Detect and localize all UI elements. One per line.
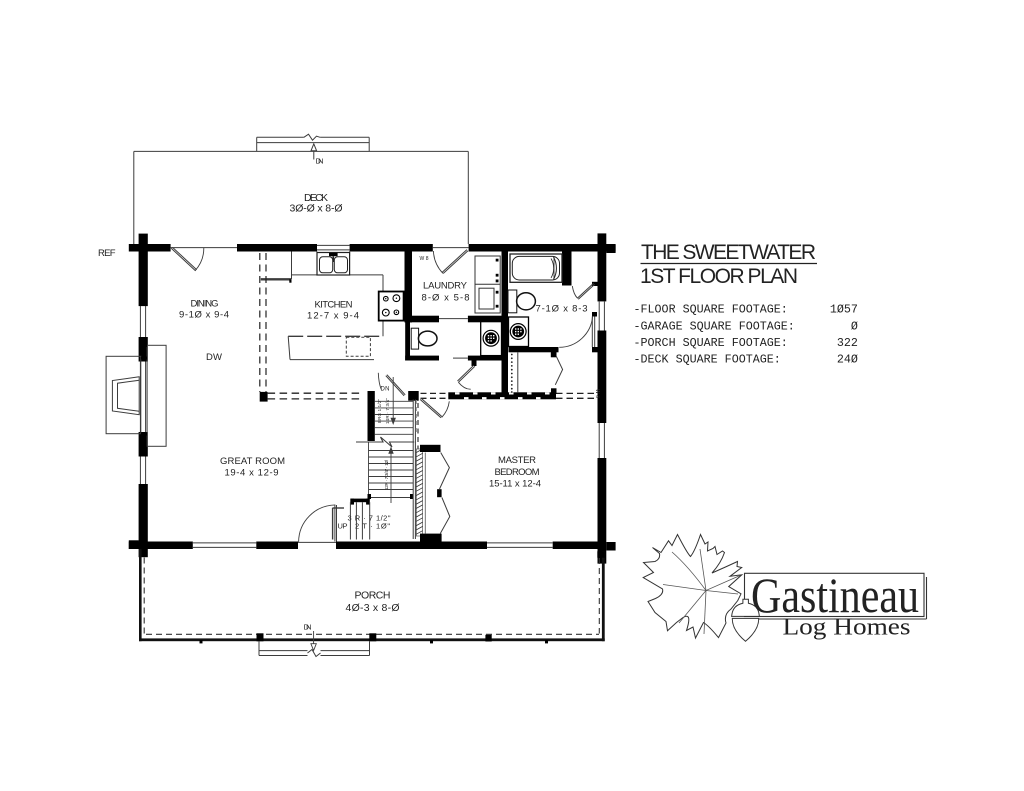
svg-text:DN: DN xyxy=(304,623,312,632)
svg-text:-PORCH SQUARE FOOTAGE: 3: -PORCH SQUARE FOOTAGE: 322 xyxy=(634,336,858,350)
svg-text:-DECK SQUARE FOOTAGE: 2: -DECK SQUARE FOOTAGE: 24Ø xyxy=(634,353,858,367)
svg-text:PORCH: PORCH xyxy=(355,590,391,602)
svg-text:REF: REF xyxy=(98,248,116,259)
svg-text:BRG 1 1/2": BRG 1 1/2" xyxy=(377,399,382,423)
svg-text:12-7 x 9-4: 12-7 x 9-4 xyxy=(307,311,359,322)
svg-text:LAUNDRY: LAUNDRY xyxy=(423,281,468,292)
svg-text:4Ø-3 x 8-Ø: 4Ø-3 x 8-Ø xyxy=(346,602,400,614)
svg-text:DN: DN xyxy=(316,157,324,166)
svg-text:-GARAGE SQUARE FOOTAGE:: -GARAGE SQUARE FOOTAGE: Ø xyxy=(634,319,858,333)
svg-text:GREAT ROOM: GREAT ROOM xyxy=(220,456,285,467)
svg-text:8-Ø x 5-8: 8-Ø x 5-8 xyxy=(422,293,470,304)
svg-text:-FLOOR SQUARE FOOTAGE: 1Ø: -FLOOR SQUARE FOOTAGE: 1Ø57 xyxy=(634,303,858,317)
svg-text:DW: DW xyxy=(206,352,222,363)
svg-text:DN: DN xyxy=(381,387,390,393)
svg-text:KITCHEN: KITCHEN xyxy=(315,300,353,311)
svg-text:W8: W8 xyxy=(420,256,429,262)
svg-text:1ST FLOOR PLAN: 1ST FLOOR PLAN xyxy=(640,265,798,288)
svg-text:19-4 x 12-9: 19-4 x 12-9 xyxy=(225,468,279,479)
svg-text:THE SWEETWATER: THE SWEETWATER xyxy=(641,241,816,264)
svg-text:Log Homes: Log Homes xyxy=(783,614,911,641)
svg-text:UP: UP xyxy=(338,522,348,531)
svg-text:14R · 7 3/4": 14R · 7 3/4" xyxy=(385,398,390,424)
svg-text:15-11 x 12-4: 15-11 x 12-4 xyxy=(489,479,541,490)
svg-text:W8: W8 xyxy=(594,389,600,398)
svg-text:12R · 7 3/4" · 1Ø: 12R · 7 3/4" · 1Ø xyxy=(384,460,389,490)
svg-text:3Ø-Ø x 8-Ø: 3Ø-Ø x 8-Ø xyxy=(290,203,343,215)
svg-text:9-1Ø x 9-4: 9-1Ø x 9-4 xyxy=(179,310,229,321)
svg-text:7-1Ø x 8-3: 7-1Ø x 8-3 xyxy=(536,304,588,315)
svg-text:2 T · 1Ø": 2 T · 1Ø" xyxy=(355,522,390,531)
svg-text:MASTER: MASTER xyxy=(498,455,536,466)
svg-text:DINING: DINING xyxy=(191,299,219,310)
svg-text:BEDROOM: BEDROOM xyxy=(495,467,540,478)
